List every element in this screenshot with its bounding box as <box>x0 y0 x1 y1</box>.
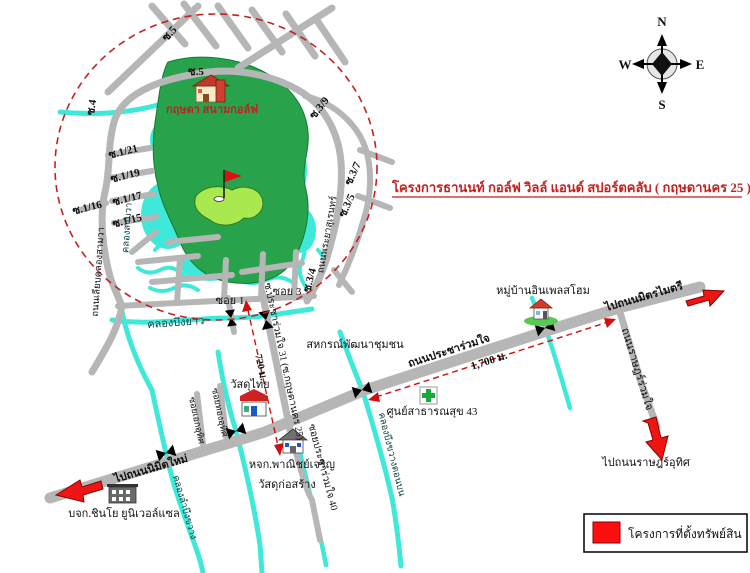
label-clubhouse: กฤษดา สนามกอล์ฟ <box>166 103 258 116</box>
compass-s: S <box>658 97 665 112</box>
label-stub-soi-a: ซอยเอกอุทิศ <box>186 396 207 445</box>
golf-course-area <box>153 57 308 283</box>
label-shinso: บจก.ชินโย ยูนิเวอล์แซล <box>68 506 179 520</box>
label-to-ratuthit: ไปถนนราษฎร์อุทิศ <box>601 456 690 469</box>
label-soi-3-7: ซ.3/7 <box>343 160 364 188</box>
shinso-building-icon <box>107 484 138 503</box>
label-sahakorn: สหกรณ์พัฒนาชุมชน <box>306 338 404 351</box>
label-panich-line2: วัสดุก่อสร้าง <box>258 479 315 491</box>
label-village: หมู่บ้านอินเพลสโฮม <box>496 283 590 297</box>
legend-label: โครงการที่ตั้งทรัพย์สิน <box>628 525 742 541</box>
legend: โครงการที่ตั้งทรัพย์สิน <box>584 514 747 552</box>
village-house-icon <box>524 299 558 326</box>
bridge-markers <box>156 309 556 461</box>
compass-w: W <box>619 57 632 72</box>
label-soi-3: ซอย 3 <box>273 286 302 298</box>
label-khlong-samwa: คลองสามวา <box>121 202 135 253</box>
arrow-to-ratuthit <box>643 417 668 460</box>
map-canvas: N S W E โครงการธานนท์ กอล์ฟ วิลล์ แอนด์ … <box>0 0 750 573</box>
compass-rose-icon: N S W E <box>619 14 705 112</box>
health-center-icon <box>420 387 437 404</box>
label-east-road: ถนนราษฎร์ร่วมใจ <box>619 326 656 412</box>
label-soi-1-19: ซ.1/19 <box>109 167 141 186</box>
label-distance-720: 720 ม. <box>252 353 268 382</box>
label-health-center: ศูนย์สาธารณสุข 43 <box>387 405 478 418</box>
label-left-ring-road: ถนนเลียบคลองสามวา <box>89 226 107 317</box>
compass-n: N <box>657 14 667 29</box>
wasadu-shop-icon <box>240 389 268 416</box>
compass-e: E <box>696 57 705 72</box>
label-soi5: ซ.5 <box>188 66 204 78</box>
project-title: โครงการธานนท์ กอล์ฟ วิลล์ แอนด์ สปอร์ตคล… <box>391 179 750 195</box>
legend-swatch <box>593 522 620 543</box>
label-khlong-buengyao: คลองบึงยาว <box>147 315 205 331</box>
label-soi-1: ซอย 1 <box>216 295 245 307</box>
label-wasadu-thai: วัสดุไทย <box>230 378 269 391</box>
